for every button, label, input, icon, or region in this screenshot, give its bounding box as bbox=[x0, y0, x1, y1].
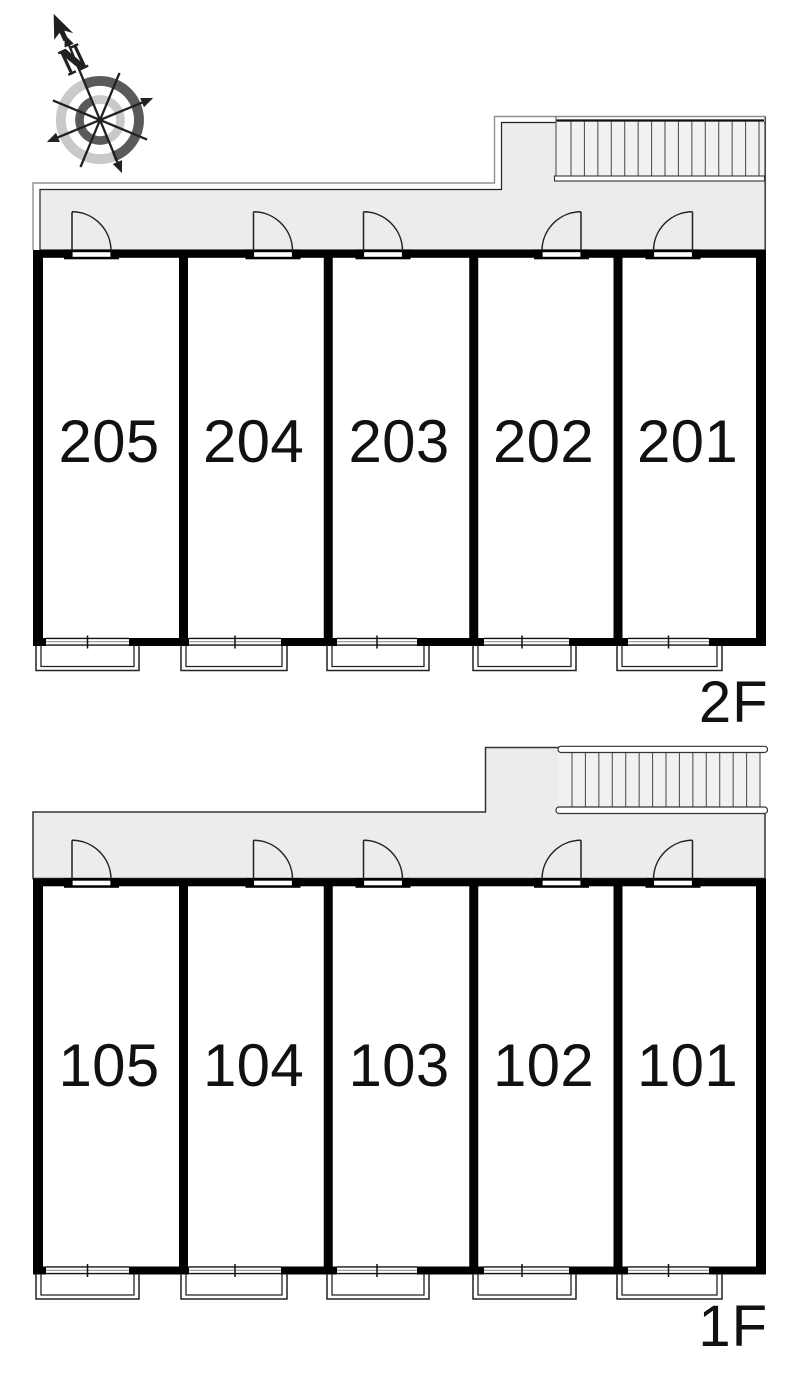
svg-text:203: 203 bbox=[348, 408, 449, 475]
svg-text:201: 201 bbox=[637, 408, 738, 475]
svg-text:202: 202 bbox=[493, 408, 594, 475]
svg-text:104: 104 bbox=[203, 1032, 304, 1099]
svg-text:101: 101 bbox=[637, 1032, 738, 1099]
svg-text:103: 103 bbox=[348, 1032, 449, 1099]
svg-text:2F: 2F bbox=[699, 670, 769, 735]
svg-text:205: 205 bbox=[58, 408, 159, 475]
svg-text:105: 105 bbox=[58, 1032, 159, 1099]
svg-text:1F: 1F bbox=[698, 1294, 768, 1359]
svg-text:102: 102 bbox=[493, 1032, 594, 1099]
svg-text:204: 204 bbox=[203, 408, 304, 475]
